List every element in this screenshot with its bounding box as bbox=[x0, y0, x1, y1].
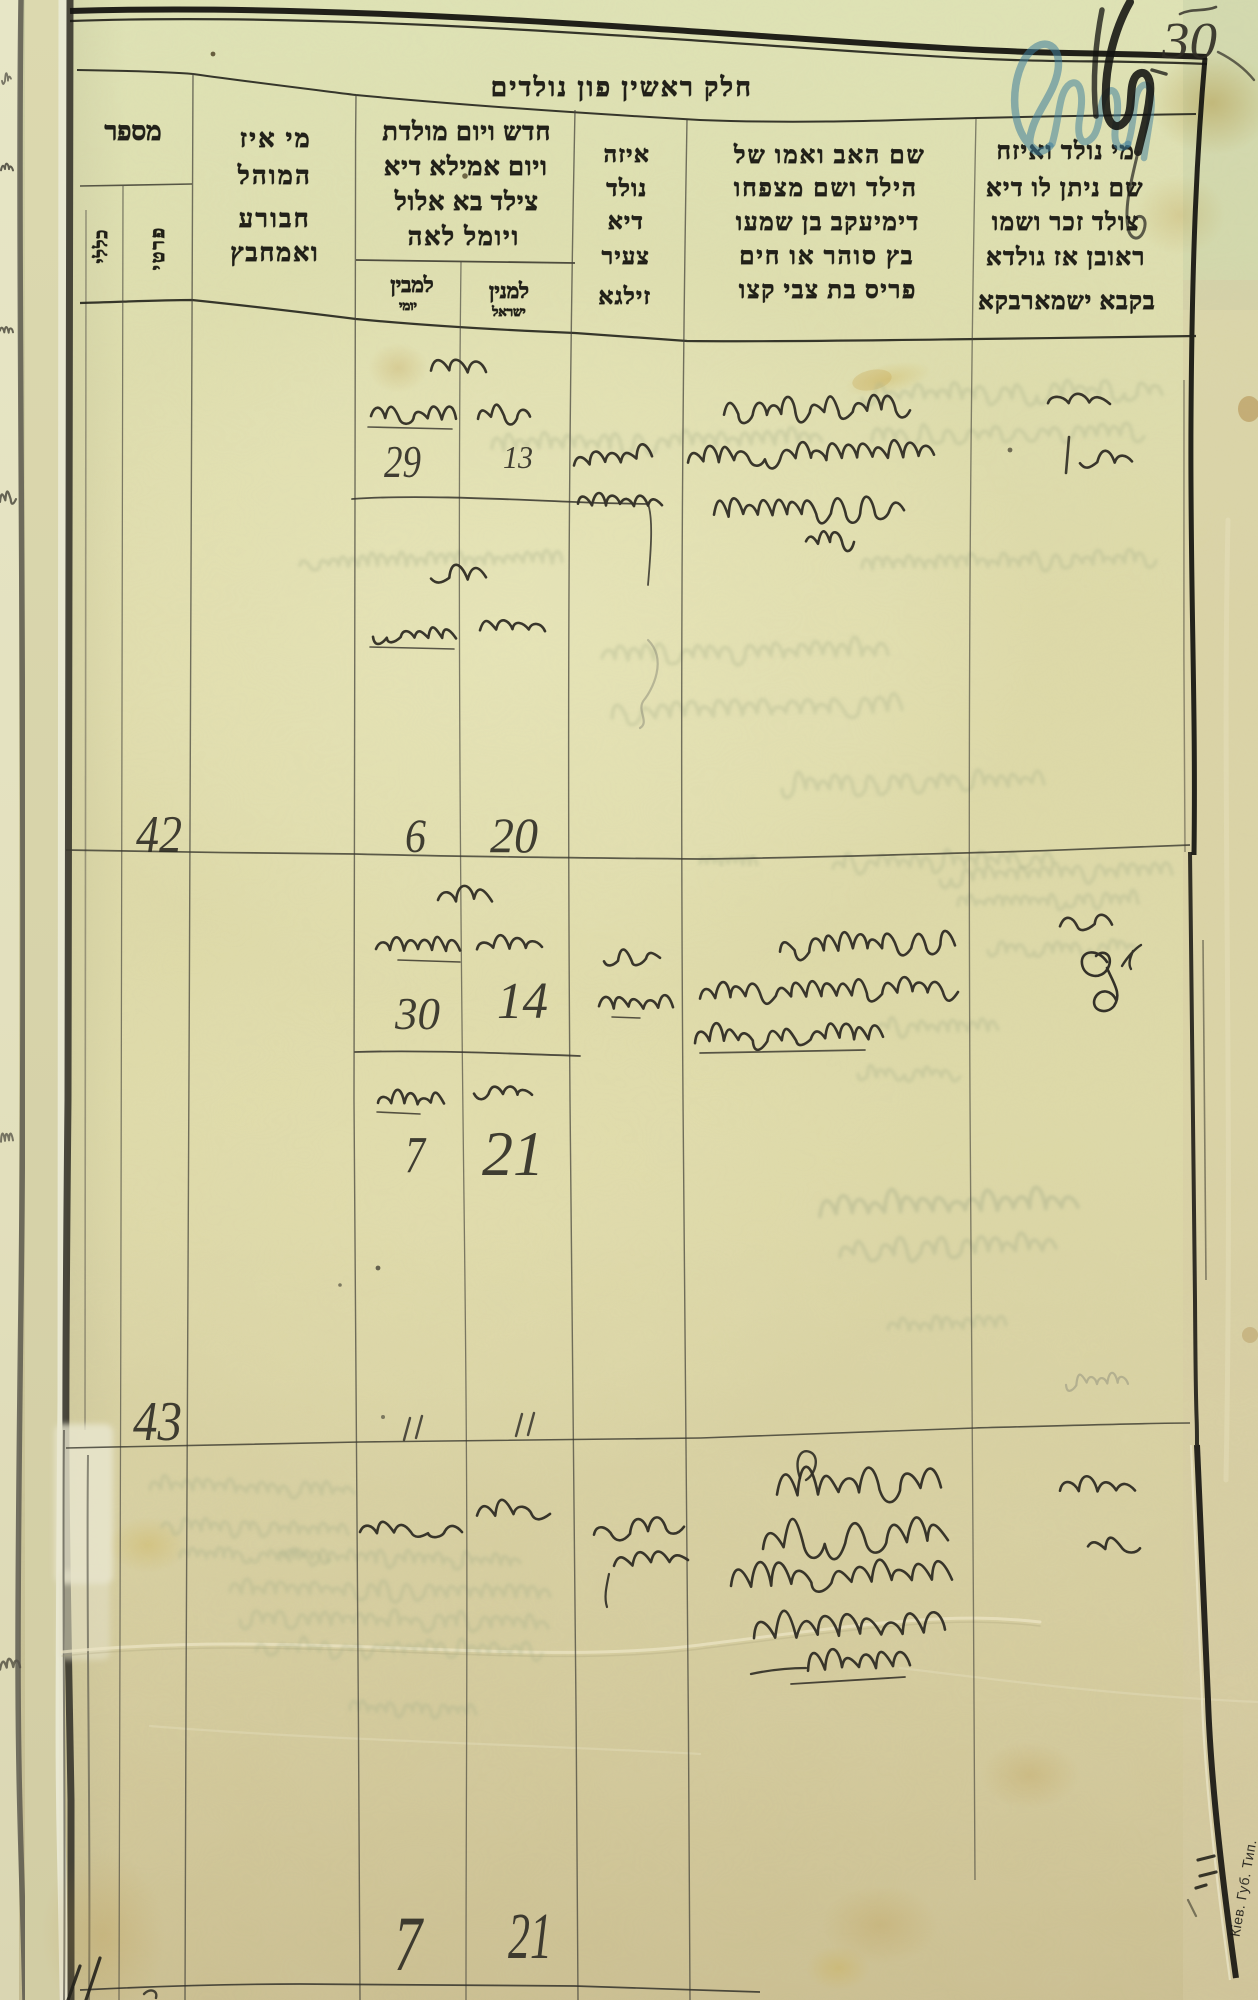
svg-text:חדש ויום מולדת: חדש ויום מולדת bbox=[383, 119, 552, 146]
svg-text:המוהל: המוהל bbox=[237, 163, 312, 190]
svg-text:דימיעקב בן שמעו: דימיעקב בן שמעו bbox=[736, 210, 920, 236]
svg-text:30: 30 bbox=[1161, 13, 1217, 70]
svg-text:למבין: למבין bbox=[390, 273, 433, 297]
svg-text:פריס בת צבי קצו: פריס בת צבי קצו bbox=[739, 278, 917, 304]
svg-text:שם האב ואמו של: שם האב ואמו של bbox=[733, 143, 926, 169]
svg-text:20: 20 bbox=[490, 807, 538, 863]
svg-text:זילגא: זילגא bbox=[598, 284, 651, 309]
svg-text:איזה: איזה bbox=[604, 142, 650, 167]
svg-text:ראובן אז גולדא: ראובן אז גולדא bbox=[986, 245, 1146, 271]
svg-text:13: 13 bbox=[503, 439, 533, 475]
svg-text:יומי: יומי bbox=[399, 298, 417, 313]
svg-text:למנין: למנין bbox=[489, 279, 529, 303]
svg-text:30: 30 bbox=[394, 988, 440, 1039]
svg-text:צולד זכר ושמו: צולד זכר ושמו bbox=[992, 210, 1140, 236]
svg-text:חלק ראשין פון נולדים: חלק ראשין פון נולדים bbox=[491, 73, 754, 102]
svg-text:נולד: נולד bbox=[606, 176, 647, 201]
svg-text:29: 29 bbox=[384, 436, 421, 487]
svg-text:מי איז: מי איז bbox=[240, 126, 312, 153]
svg-text:6: 6 bbox=[405, 810, 426, 863]
svg-text:14: 14 bbox=[497, 973, 548, 1030]
svg-text:ואמחבץ: ואמחבץ bbox=[230, 240, 319, 267]
svg-text:פרטי: פרטי bbox=[148, 226, 169, 270]
svg-text:הילד ושם מצפחו: הילד ושם מצפחו bbox=[734, 176, 918, 202]
svg-text:7: 7 bbox=[405, 1127, 427, 1184]
svg-text:ישראל: ישראל bbox=[491, 304, 525, 319]
svg-text:בקבא ישמארבקא: בקבא ישמארבקא bbox=[978, 289, 1156, 315]
svg-text:42: 42 bbox=[136, 806, 182, 864]
svg-text:ויום אמילא דיא: ויום אמילא דיא bbox=[384, 154, 548, 181]
svg-text:7: 7 bbox=[394, 1900, 424, 1987]
svg-text:צילד בא אלול: צילד בא אלול bbox=[394, 189, 539, 216]
svg-text:חבורע: חבורע bbox=[239, 206, 311, 233]
svg-text:בץ סוהר או חים: בץ סוהר או חים bbox=[739, 244, 914, 270]
svg-text:שם ניתן לו דיא: שם ניתן לו דיא bbox=[986, 176, 1144, 202]
svg-text:דיא: דיא bbox=[608, 209, 644, 234]
svg-text:מספר: מספר bbox=[104, 117, 161, 146]
svg-text:21: 21 bbox=[508, 1900, 552, 1973]
svg-text:כללי: כללי bbox=[91, 229, 111, 263]
svg-text:43: 43 bbox=[133, 1391, 182, 1453]
svg-text:21: 21 bbox=[482, 1118, 544, 1189]
svg-text:צעיר: צעיר bbox=[602, 244, 650, 269]
svg-text:ויומל לאה: ויומל לאה bbox=[408, 224, 520, 251]
